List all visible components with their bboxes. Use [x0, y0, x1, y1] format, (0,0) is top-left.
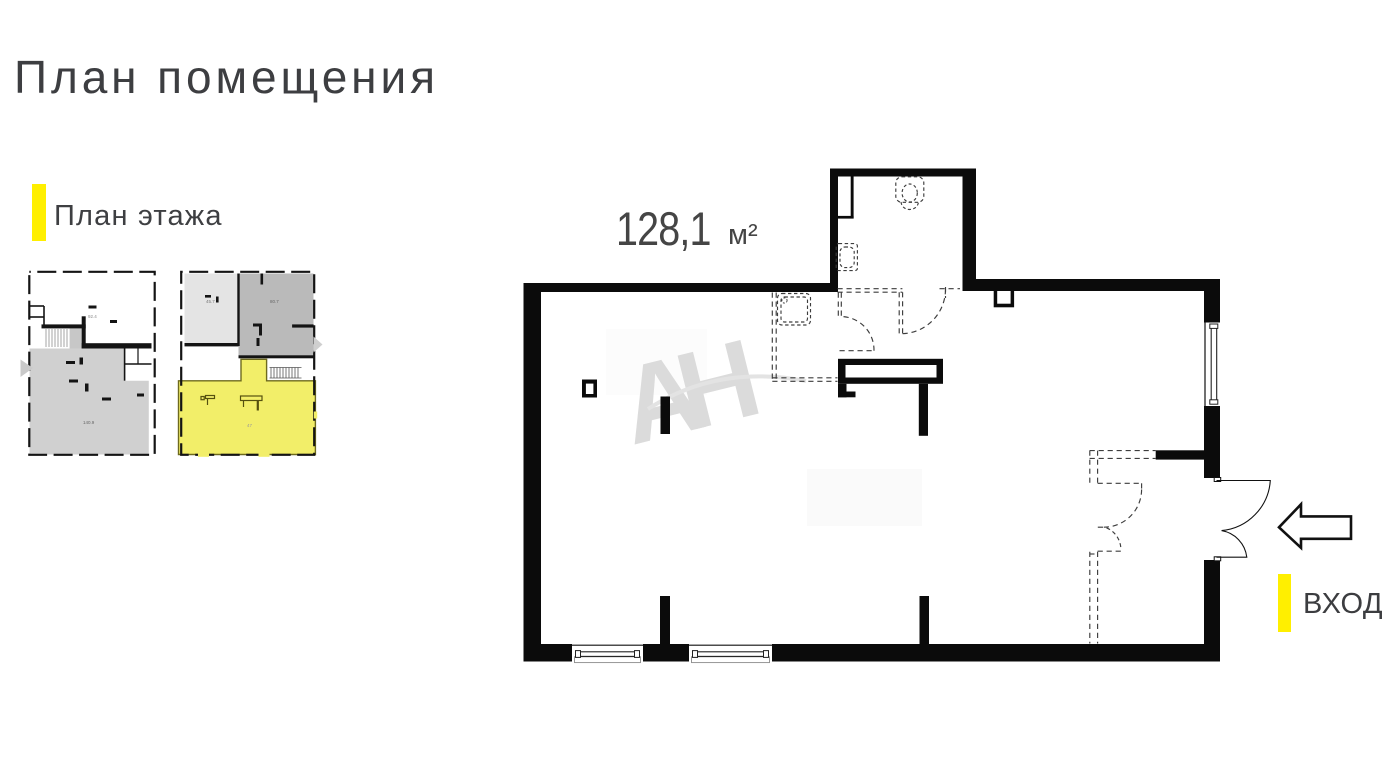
svg-text:80.7: 80.7 [270, 299, 279, 304]
svg-text:47: 47 [247, 423, 253, 428]
svg-text:45.7: 45.7 [206, 299, 215, 304]
svg-text:92.4: 92.4 [88, 314, 97, 319]
svg-text:140.9: 140.9 [83, 420, 95, 425]
